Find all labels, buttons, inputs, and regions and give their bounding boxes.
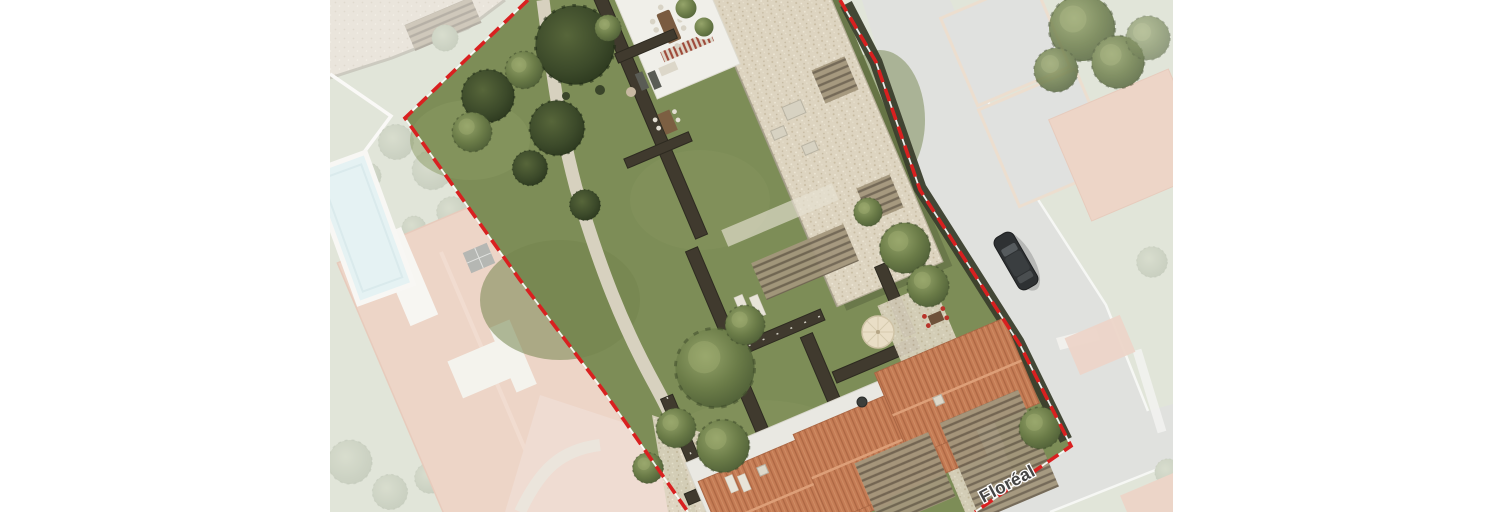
right-margin <box>1173 0 1504 512</box>
pouf <box>626 87 636 97</box>
bbq-grill <box>857 397 867 407</box>
site-plan-canvas: Floréal <box>0 0 1504 512</box>
terrace-planter-tree-1 <box>674 0 698 20</box>
parasol <box>862 316 894 348</box>
terrace-planter-tree-2 <box>693 16 715 38</box>
shrub <box>595 85 605 95</box>
site-plan-screenshot: Floréal <box>0 0 1504 512</box>
left-margin <box>0 0 330 512</box>
shrub <box>562 92 570 100</box>
